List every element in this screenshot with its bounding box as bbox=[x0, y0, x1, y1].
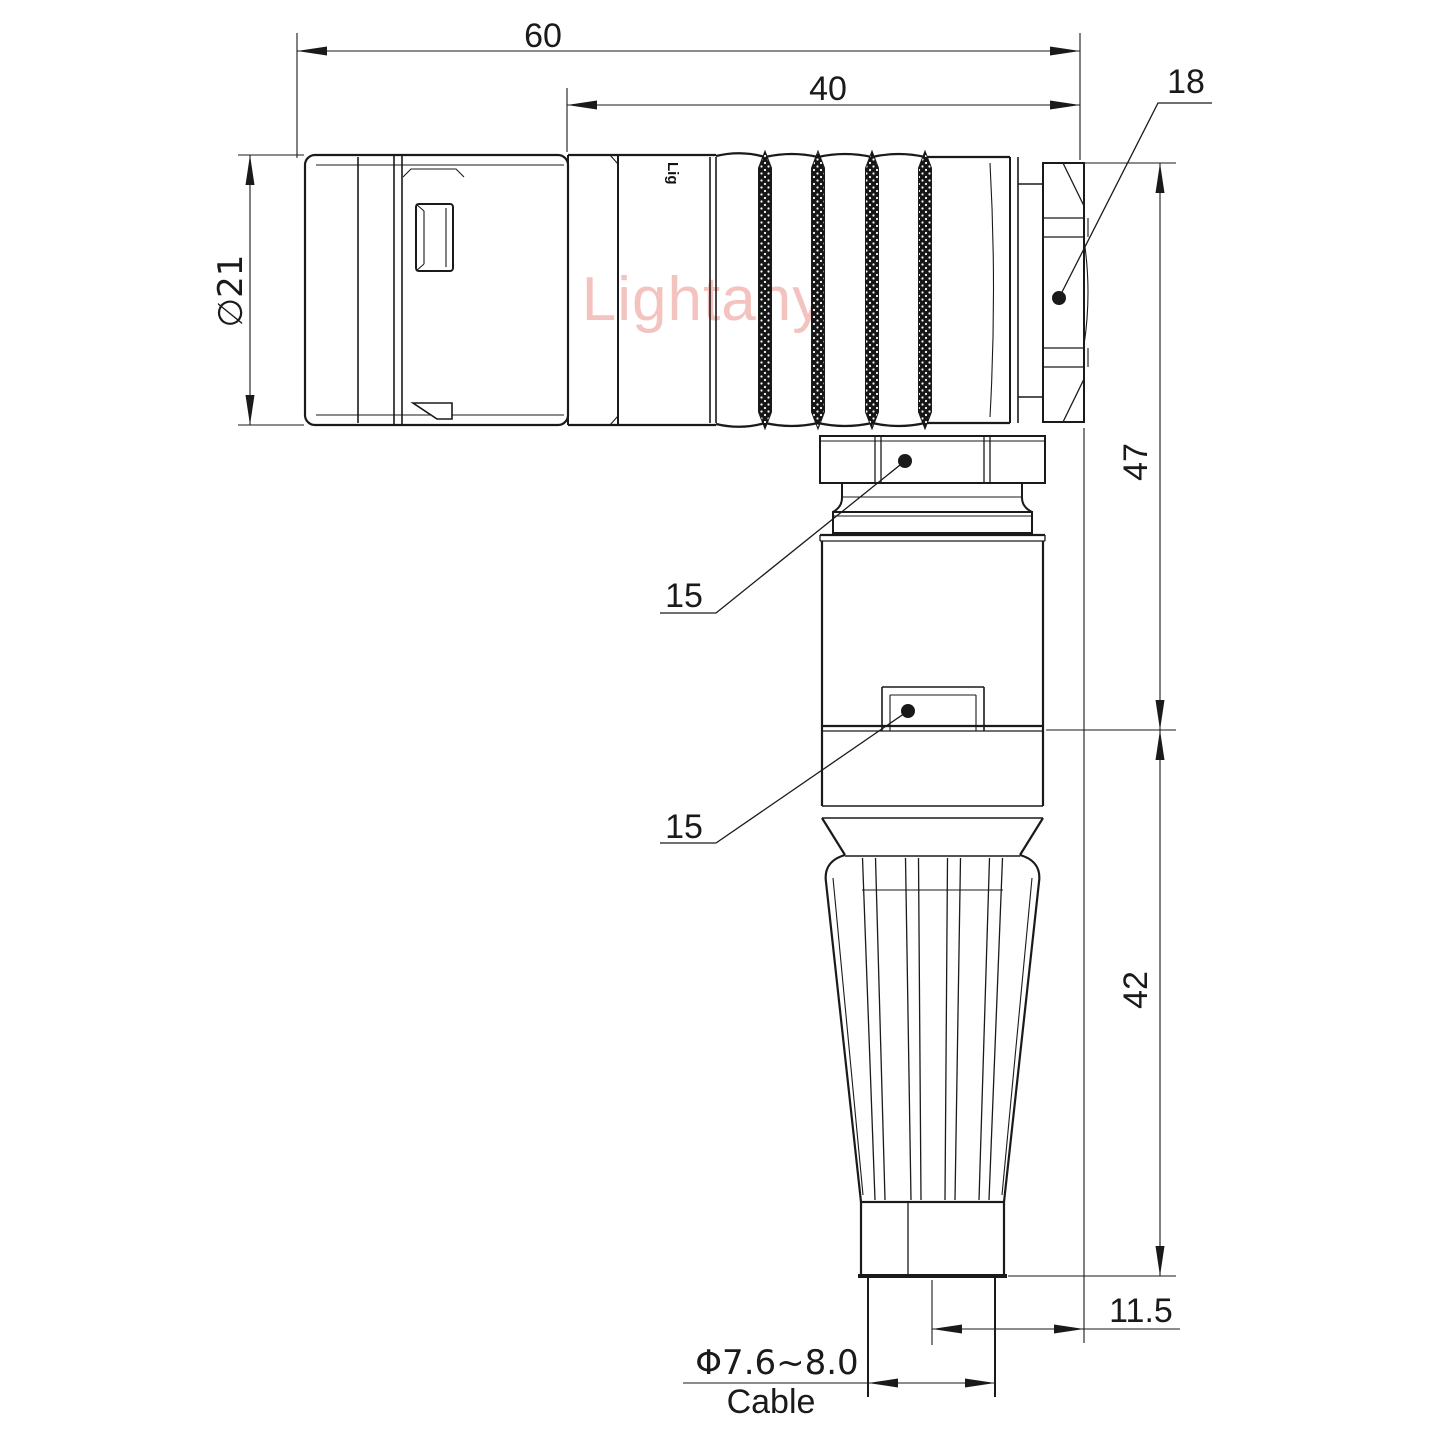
arrow-47-bottom bbox=[1156, 700, 1165, 730]
arrow-60-left bbox=[297, 47, 327, 56]
arrow-d21-bottom bbox=[246, 395, 255, 425]
dim-cable-diameter-text: Φ7.6~8.0 bbox=[695, 1343, 858, 1383]
knurl-band-2 bbox=[812, 151, 825, 429]
dim-18-text: 18 bbox=[1167, 63, 1205, 101]
taper-left bbox=[822, 818, 845, 855]
front-release-sleeve bbox=[305, 155, 568, 425]
flare-left bbox=[833, 498, 842, 512]
arrow-40-right bbox=[1050, 101, 1080, 110]
arrow-47-top bbox=[1156, 163, 1165, 193]
boot-groove-1b bbox=[876, 858, 886, 1200]
coupling-nut-outline bbox=[820, 436, 1045, 483]
dim-15a-text: 15 bbox=[665, 577, 703, 615]
arrow-cable-right bbox=[965, 1379, 995, 1388]
leader-dot-18 bbox=[1052, 291, 1066, 305]
arrow-d21-top bbox=[246, 155, 255, 185]
dim-15b-text: 15 bbox=[665, 808, 703, 846]
flare-right bbox=[1022, 498, 1032, 512]
knurl-band-4 bbox=[919, 151, 932, 429]
boot-groove-3b bbox=[955, 858, 961, 1200]
strain-relief-boot bbox=[826, 855, 1040, 1202]
cable-label-text: Cable bbox=[727, 1383, 816, 1421]
arrow-11-5-right bbox=[1054, 1325, 1084, 1334]
arrow-60-right bbox=[1050, 47, 1080, 56]
ferrule-outline bbox=[861, 1202, 1004, 1276]
taper-right bbox=[1020, 818, 1043, 855]
arrow-40-left bbox=[567, 101, 597, 110]
dim-40-text: 40 bbox=[809, 70, 847, 108]
lower-body bbox=[820, 535, 1045, 855]
arrow-cable-left bbox=[868, 1379, 898, 1388]
boot-left-inner bbox=[833, 878, 863, 1195]
connector-outline bbox=[305, 151, 1088, 1397]
dim-60-text: 60 bbox=[524, 17, 562, 55]
drawing-sheet: Lightany bbox=[0, 0, 1440, 1440]
boot-groove-2a bbox=[906, 858, 912, 1200]
leader-dot-15a bbox=[898, 454, 912, 468]
arrow-42-top bbox=[1156, 730, 1165, 760]
boot-right-inner bbox=[1002, 878, 1032, 1195]
boot-groove-3a bbox=[945, 858, 948, 1200]
boot-right-silhouette bbox=[1004, 855, 1039, 1202]
knurl-band-1 bbox=[759, 151, 772, 429]
ring-outline bbox=[833, 512, 1032, 533]
arrow-11-5-left bbox=[932, 1325, 962, 1334]
connector-technical-drawing: Lightany bbox=[0, 0, 1440, 1440]
hex-nut-outline bbox=[1043, 163, 1084, 422]
boot-groove-2b bbox=[919, 858, 922, 1200]
knurled-barrel bbox=[710, 151, 1043, 429]
leader-dot-15b bbox=[901, 704, 915, 718]
knurl-top-edge bbox=[716, 153, 1010, 157]
dim-42-text: 42 bbox=[1117, 971, 1155, 1009]
sleeve-outline bbox=[305, 155, 568, 425]
barrel-end-bow bbox=[990, 163, 994, 417]
dim-d21-text: ∅21 bbox=[211, 255, 251, 328]
knurl-bottom-edge bbox=[716, 423, 1010, 427]
collar-chamfer-bottom bbox=[610, 416, 618, 425]
neck-and-ring bbox=[833, 483, 1032, 533]
boot-left-silhouette bbox=[826, 855, 861, 1202]
boot-groove-4a bbox=[979, 858, 990, 1200]
brand-engraving-text: Lig bbox=[664, 162, 681, 185]
rear-hex-nut bbox=[1043, 163, 1088, 422]
knurl-band-3 bbox=[866, 151, 879, 429]
collar-chamfer-top bbox=[610, 155, 618, 164]
coupling-nut bbox=[820, 436, 1045, 483]
dim-11-5-text: 11.5 bbox=[1109, 1292, 1173, 1330]
boot-groove-4b bbox=[989, 858, 1003, 1200]
boot-groove-1a bbox=[863, 858, 876, 1200]
dim-47-text: 47 bbox=[1117, 443, 1155, 481]
arrow-42-bottom bbox=[1156, 1246, 1165, 1276]
